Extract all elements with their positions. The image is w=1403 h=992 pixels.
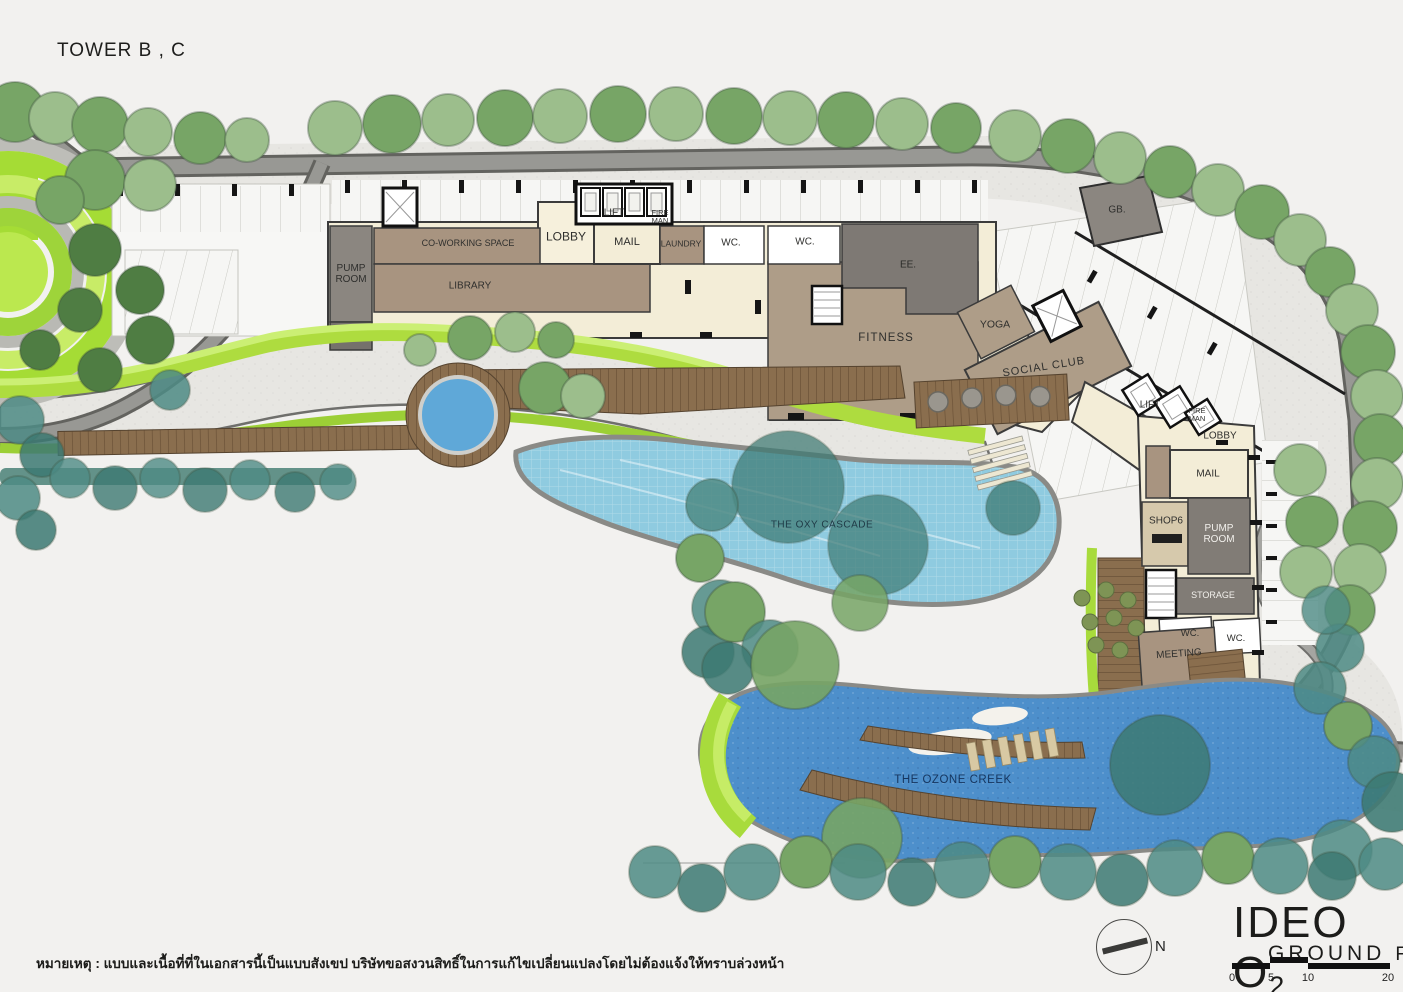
scale-bar-segment-3 bbox=[1308, 963, 1390, 969]
room-label-pump-room-c: PUMP ROOM bbox=[1196, 524, 1242, 546]
room-label-lift-c: LIFT bbox=[1140, 401, 1161, 412]
scale-tick-20: 20 bbox=[1382, 972, 1394, 984]
room-label-fireman-b: FIRE MAN bbox=[646, 209, 674, 225]
room-label-co-working: CO-WORKING SPACE bbox=[422, 239, 515, 249]
room-label-yoga: YOGA bbox=[980, 319, 1010, 330]
room-label-library: LIBRARY bbox=[449, 282, 492, 293]
site-plan-canvas: TOWER B , C PUMP ROOM CO-WORKING SPACE L… bbox=[0, 0, 1403, 992]
room-label-fireman-c: FIRE MAN bbox=[1182, 407, 1212, 423]
room-label-lobby-b: LOBBY bbox=[546, 231, 586, 244]
scale-bar-segment-1 bbox=[1232, 963, 1270, 969]
room-label-mail-b: MAIL bbox=[614, 237, 640, 249]
room-label-wc-2: WC. bbox=[795, 238, 814, 249]
room-label-lobby-c: LOBBY bbox=[1203, 432, 1236, 443]
plan-title: TOWER B , C bbox=[57, 40, 186, 62]
water-label-oxy-cascade: THE OXY CASCADE bbox=[771, 521, 873, 532]
room-label-shop6: SHOP6 bbox=[1149, 517, 1183, 528]
room-label-wc-1: WC. bbox=[721, 239, 740, 250]
room-label-mail-c: MAIL bbox=[1196, 470, 1219, 481]
scale-bar-segment-2 bbox=[1270, 957, 1308, 963]
site-plan-drawing bbox=[0, 0, 1403, 992]
room-label-laundry: LAUNDRY bbox=[661, 239, 701, 248]
room-label-wc-3: WC. bbox=[1181, 629, 1199, 639]
room-label-fitness: FITNESS bbox=[858, 332, 914, 344]
room-label-gb: GB. bbox=[1108, 206, 1125, 217]
scale-tick-10: 10 bbox=[1302, 972, 1314, 984]
scale-tick-5: 5 bbox=[1268, 972, 1274, 984]
compass-north-label: N bbox=[1155, 938, 1166, 955]
room-label-storage: STORAGE bbox=[1191, 591, 1235, 601]
room-label-ee: EE. bbox=[900, 261, 916, 272]
water-label-ozone-creek: THE OZONE CREEK bbox=[894, 774, 1011, 786]
floor-label-word: Floor bbox=[1395, 944, 1403, 965]
room-label-lift-b: LIFT bbox=[604, 209, 625, 220]
room-label-pump-room-b: PUMP ROOM bbox=[329, 264, 373, 286]
disclaimer-note: หมายเหตุ : แบบและเนื้อที่ที่ในเอกสารนี้เ… bbox=[36, 952, 784, 974]
room-label-wc-4: WC. bbox=[1227, 634, 1245, 644]
scale-tick-0: 0 bbox=[1229, 972, 1235, 984]
